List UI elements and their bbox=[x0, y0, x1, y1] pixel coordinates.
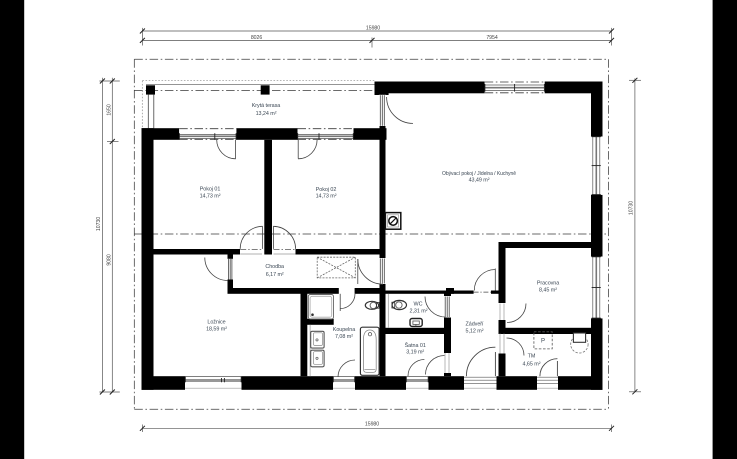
svg-text:1650: 1650 bbox=[107, 104, 113, 116]
svg-text:3,19 m²: 3,19 m² bbox=[406, 350, 424, 356]
svg-text:Krytá terasa: Krytá terasa bbox=[252, 103, 281, 109]
svg-text:14,73 m²: 14,73 m² bbox=[200, 193, 221, 199]
svg-text:18,59 m²: 18,59 m² bbox=[206, 327, 227, 333]
svg-text:Zádveří: Zádveří bbox=[466, 322, 484, 328]
svg-text:P: P bbox=[541, 339, 545, 345]
svg-text:15980: 15980 bbox=[365, 421, 379, 427]
svg-text:8026: 8026 bbox=[251, 35, 263, 41]
svg-text:7954: 7954 bbox=[486, 35, 498, 41]
svg-text:Ložnice: Ložnice bbox=[207, 320, 225, 326]
svg-text:7,08 m²: 7,08 m² bbox=[335, 334, 353, 340]
svg-text:Pokoj 02: Pokoj 02 bbox=[316, 187, 337, 193]
svg-text:Pracovna: Pracovna bbox=[537, 281, 559, 287]
svg-text:Obývací pokoj / Jídelna / Kuch: Obývací pokoj / Jídelna / Kuchyně bbox=[442, 171, 516, 177]
svg-text:6,17 m²: 6,17 m² bbox=[266, 272, 284, 278]
svg-text:4,65 m²: 4,65 m² bbox=[523, 362, 541, 368]
svg-text:9080: 9080 bbox=[107, 254, 113, 266]
svg-text:14,73 m²: 14,73 m² bbox=[316, 194, 337, 200]
svg-text:TM: TM bbox=[528, 354, 536, 360]
svg-text:43,49 m²: 43,49 m² bbox=[469, 178, 490, 184]
svg-text:Šatna 01: Šatna 01 bbox=[405, 342, 426, 349]
svg-text:8,45 m²: 8,45 m² bbox=[539, 288, 557, 294]
svg-text:15980: 15980 bbox=[366, 26, 380, 32]
svg-text:13,24 m²: 13,24 m² bbox=[256, 111, 277, 117]
svg-text:Pokoj 01: Pokoj 01 bbox=[200, 187, 221, 193]
svg-text:Koupelna: Koupelna bbox=[333, 327, 355, 333]
svg-text:2,31 m²: 2,31 m² bbox=[410, 309, 428, 315]
svg-text:5,12 m²: 5,12 m² bbox=[466, 329, 484, 335]
svg-text:10730: 10730 bbox=[628, 201, 634, 215]
svg-text:10730: 10730 bbox=[96, 217, 102, 231]
svg-text:Chodba: Chodba bbox=[265, 264, 284, 270]
svg-text:WC: WC bbox=[414, 302, 423, 308]
